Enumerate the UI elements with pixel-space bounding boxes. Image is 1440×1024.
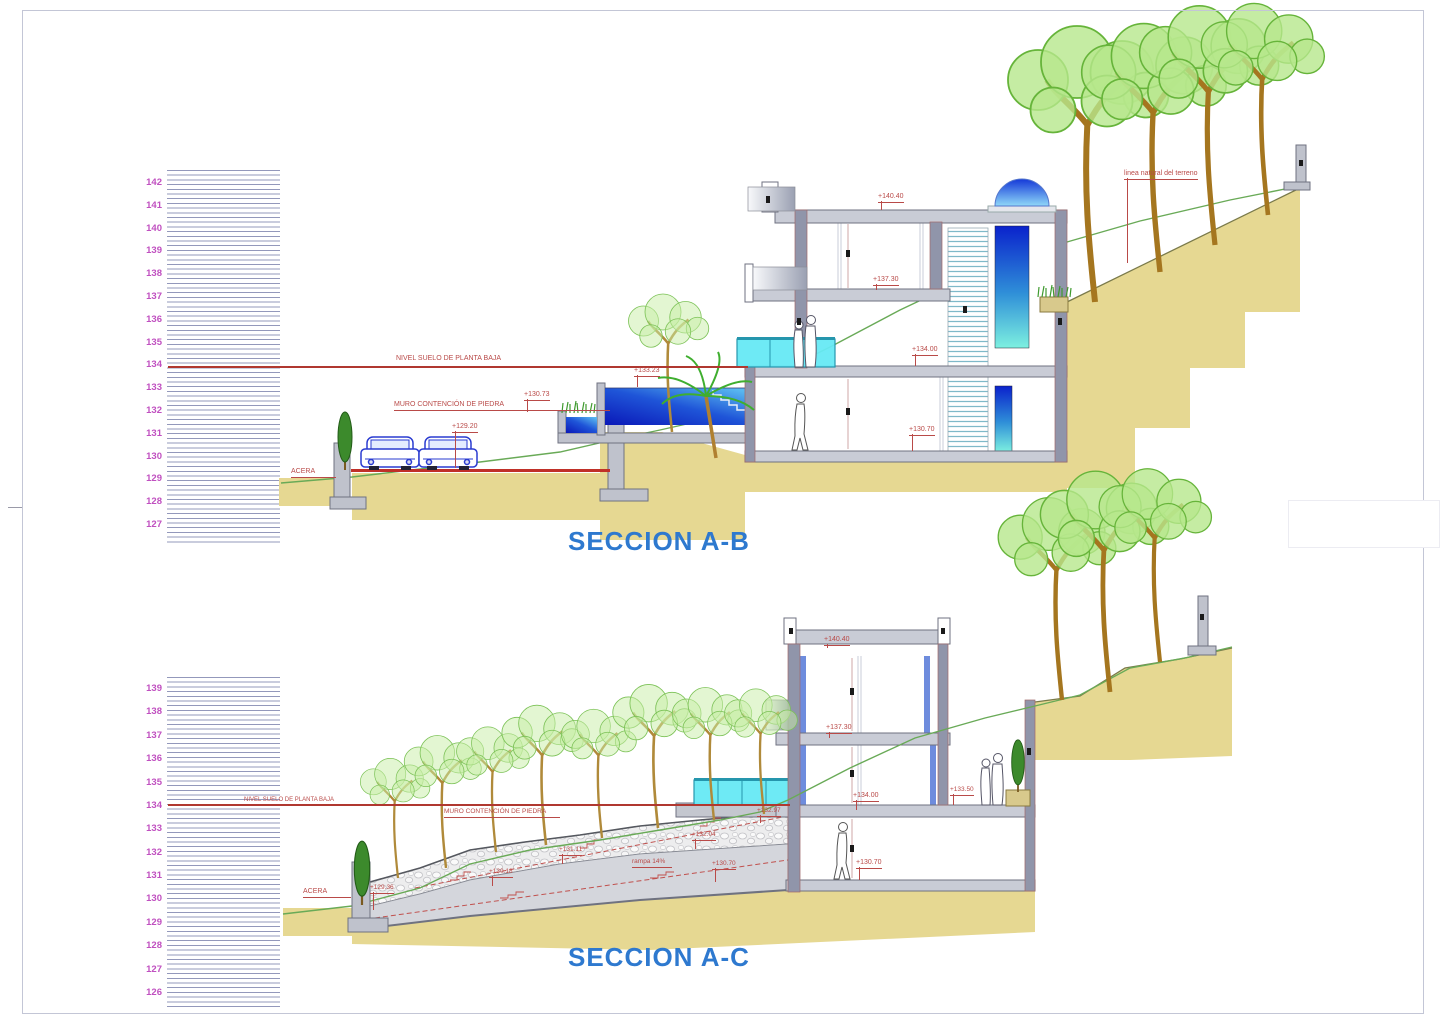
sections-vector-art: [0, 0, 1440, 1024]
sidewalk-label-ab: ACERA: [291, 468, 336, 478]
scale-number: 142: [130, 178, 162, 188]
scale-number: 137: [130, 292, 162, 302]
pool-ab: [558, 383, 748, 443]
scale-number: 136: [130, 754, 162, 764]
leader: [492, 876, 493, 886]
glass-balustrade-ab: [737, 339, 835, 367]
leader: [695, 839, 696, 849]
retaining-wall-label-ac: MURO CONTENCIÓN DE PIEDRA: [444, 808, 560, 818]
leader: [953, 794, 954, 805]
section-ac-art: [283, 469, 1232, 950]
scale-number: 128: [130, 941, 162, 951]
scale-number: 135: [130, 778, 162, 788]
scale-number: 132: [130, 848, 162, 858]
elevation-scale-ab: 1421411401391381371361351341331321311301…: [130, 178, 162, 530]
scale-number: 132: [130, 406, 162, 416]
upper-wall-ab: [1284, 145, 1310, 190]
leader: [915, 354, 916, 366]
sidewalk-label-ac: ACERA: [303, 888, 351, 898]
leader: [881, 201, 882, 210]
leader: [859, 867, 860, 880]
leader: [527, 399, 528, 412]
leader: [856, 800, 857, 810]
scale-number: 141: [130, 201, 162, 211]
leader: [373, 892, 374, 910]
leader: [760, 815, 761, 823]
leader: [715, 868, 716, 882]
elevation-scale-ac: 1391381371361351341331321311301291281271…: [130, 684, 162, 998]
leader: [829, 732, 830, 738]
section-ab-art: [279, 3, 1324, 540]
scale-number: 137: [130, 731, 162, 741]
leader: [1127, 178, 1128, 263]
leader: [637, 375, 638, 387]
scale-number: 139: [130, 684, 162, 694]
scale-number: 134: [130, 801, 162, 811]
revision-patch: [1288, 500, 1440, 548]
scale-number: 127: [130, 520, 162, 530]
scale-number: 136: [130, 315, 162, 325]
building-ac: [766, 618, 1035, 892]
section-ab-title: SECCION A-B: [568, 526, 750, 557]
scale-number: 128: [130, 497, 162, 507]
leader: [562, 854, 563, 864]
garage-floor-line: [351, 469, 610, 472]
scale-number: 131: [130, 871, 162, 881]
parked-cars: [361, 437, 477, 470]
retaining-wall-label-ab: MURO CONTENCIÓN DE PIEDRA: [394, 401, 610, 411]
scale-number: 138: [130, 707, 162, 717]
scale-number: 126: [130, 988, 162, 998]
ramp-label-ac: rampa 14%: [632, 858, 672, 868]
arch-skylight: [995, 179, 1049, 206]
leader: [912, 434, 913, 451]
ground-line-label-ab: NIVEL SUELO DE PLANTA BAJA: [396, 355, 501, 363]
scale-number: 130: [130, 894, 162, 904]
frame-tick: [8, 507, 22, 508]
scale-number: 129: [130, 474, 162, 484]
scale-number: 135: [130, 338, 162, 348]
scale-number: 131: [130, 429, 162, 439]
scale-number: 130: [130, 452, 162, 462]
leader: [876, 284, 877, 290]
section-ac-title: SECCION A-C: [568, 942, 750, 973]
scale-number: 133: [130, 824, 162, 834]
scale-number: 129: [130, 918, 162, 928]
leader: [827, 644, 828, 648]
scale-number: 138: [130, 269, 162, 279]
ground-level-line-ac: [168, 804, 790, 806]
scale-number: 127: [130, 965, 162, 975]
building-ab: [737, 179, 1071, 462]
terrain-line-label-ab: linea natural del terreno: [1124, 170, 1198, 180]
scale-number: 134: [130, 360, 162, 370]
ground-line-label-ac: NIVEL SUELO DE PLANTA BAJA: [244, 796, 334, 804]
section-drawing-sheet: 1421411401391381371361351341331321311301…: [0, 0, 1440, 1024]
scale-number: 139: [130, 246, 162, 256]
ground-level-line-ab: [168, 366, 748, 368]
leader: [455, 431, 456, 468]
scale-number: 133: [130, 383, 162, 393]
scale-number: 140: [130, 224, 162, 234]
